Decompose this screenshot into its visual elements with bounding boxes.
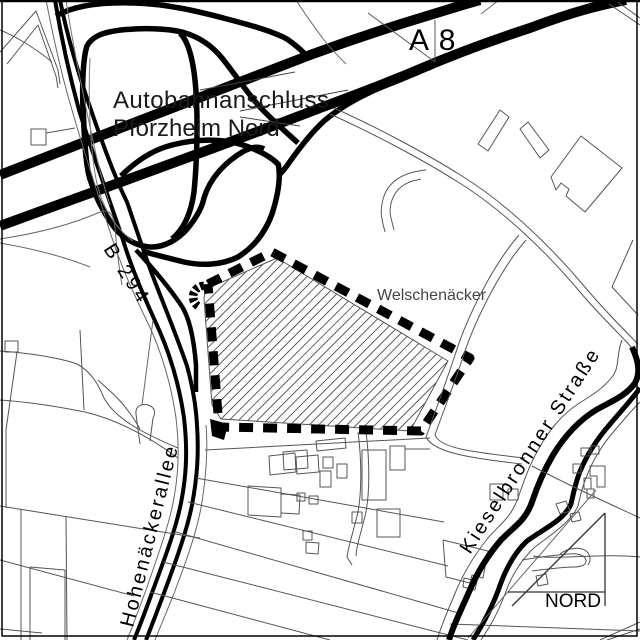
svg-text:Autobahnanschluss: Autobahnanschluss xyxy=(113,87,329,114)
svg-text:NORD: NORD xyxy=(545,591,601,612)
svg-text:Pforzheim Nord: Pforzheim Nord xyxy=(113,115,280,142)
svg-text:A 8: A 8 xyxy=(409,24,457,57)
svg-text:Welschenäcker: Welschenäcker xyxy=(377,287,487,304)
